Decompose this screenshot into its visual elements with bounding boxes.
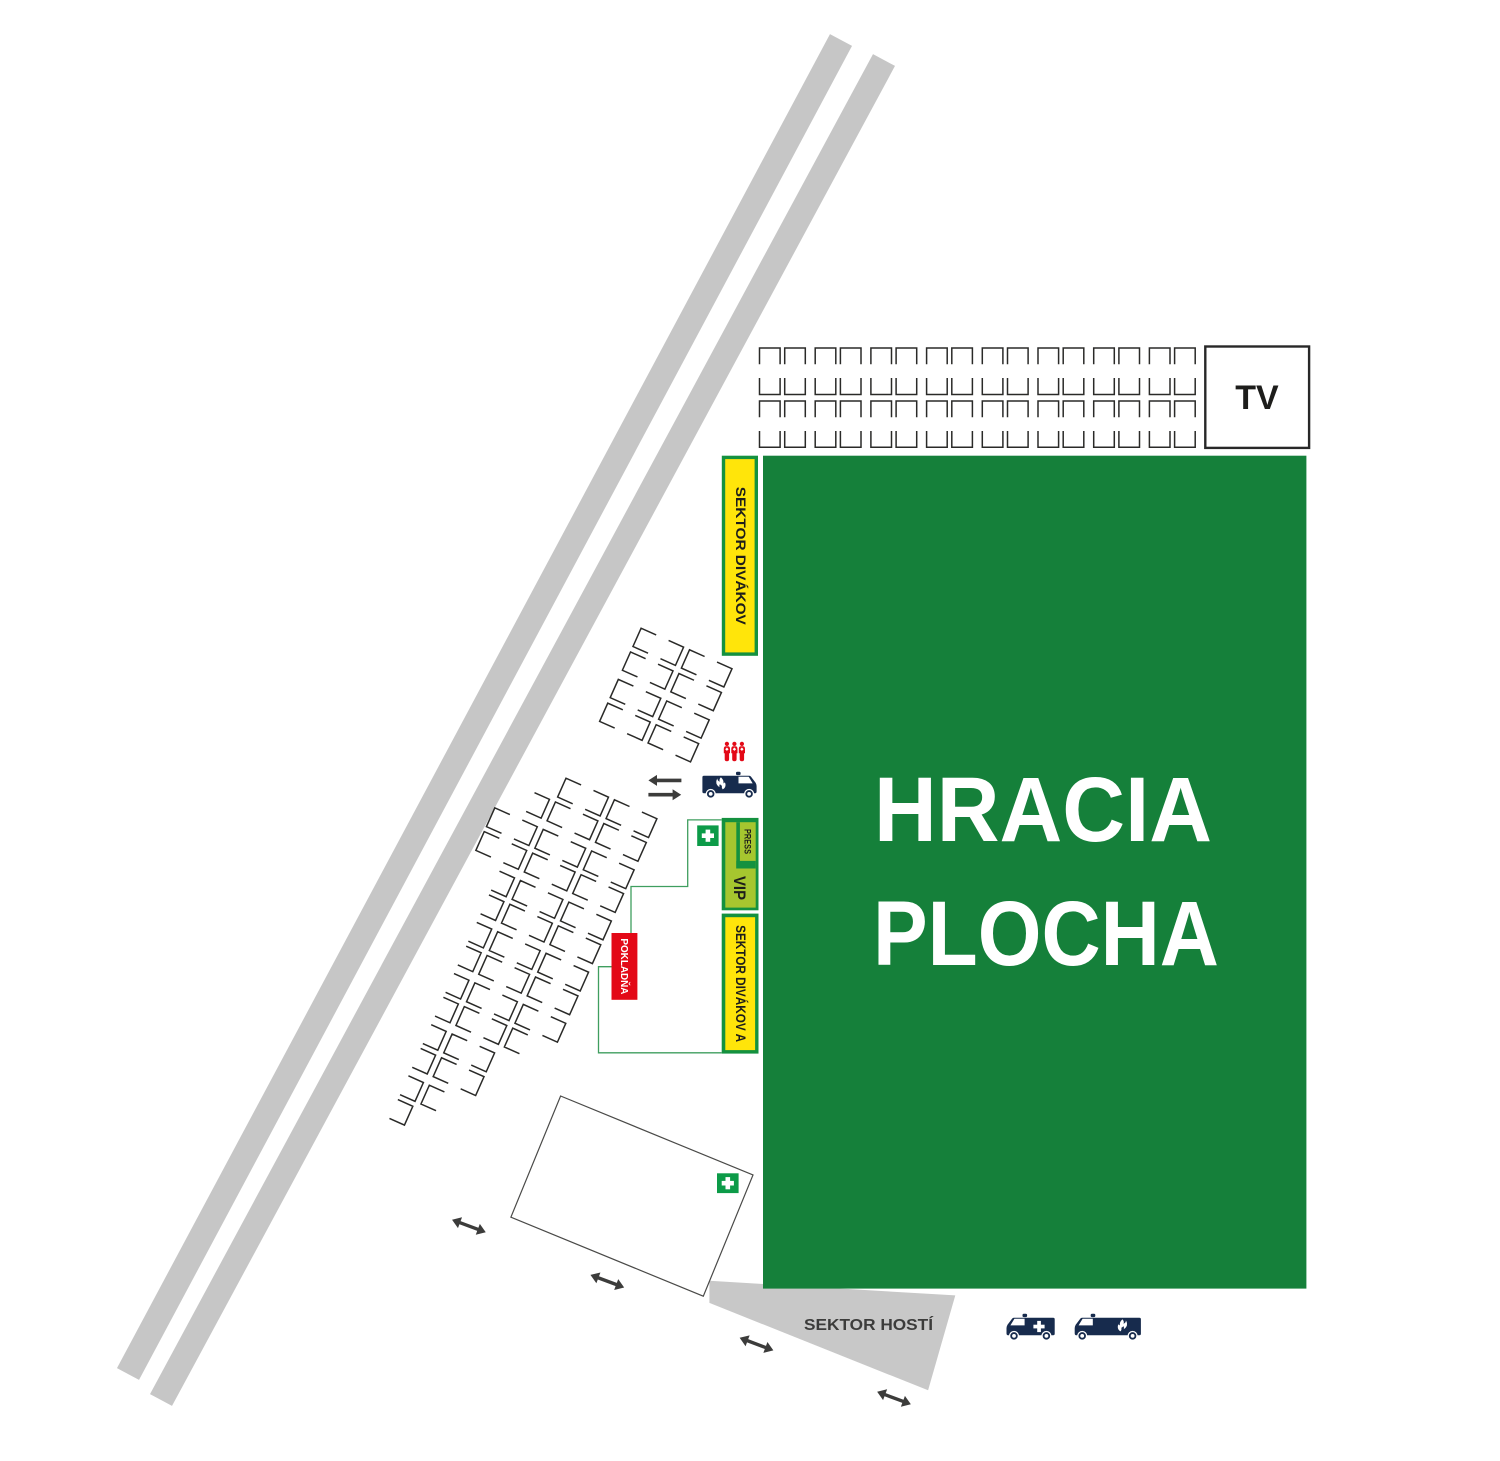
svg-text:SEKTOR DIVÁKOV A: SEKTOR DIVÁKOV A <box>733 925 749 1042</box>
svg-text:TV: TV <box>1235 379 1279 417</box>
svg-text:VIP: VIP <box>730 876 749 900</box>
svg-text:PLOCHA: PLOCHA <box>873 883 1219 985</box>
svg-text:PRESS: PRESS <box>741 829 752 854</box>
svg-text:POKLADŇA: POKLADŇA <box>618 938 631 995</box>
svg-text:HRACIA: HRACIA <box>874 759 1212 861</box>
svg-text:SEKTOR HOSTÍ: SEKTOR HOSTÍ <box>804 1315 934 1334</box>
svg-text:SEKTOR DIVÁKOV: SEKTOR DIVÁKOV <box>733 487 749 626</box>
